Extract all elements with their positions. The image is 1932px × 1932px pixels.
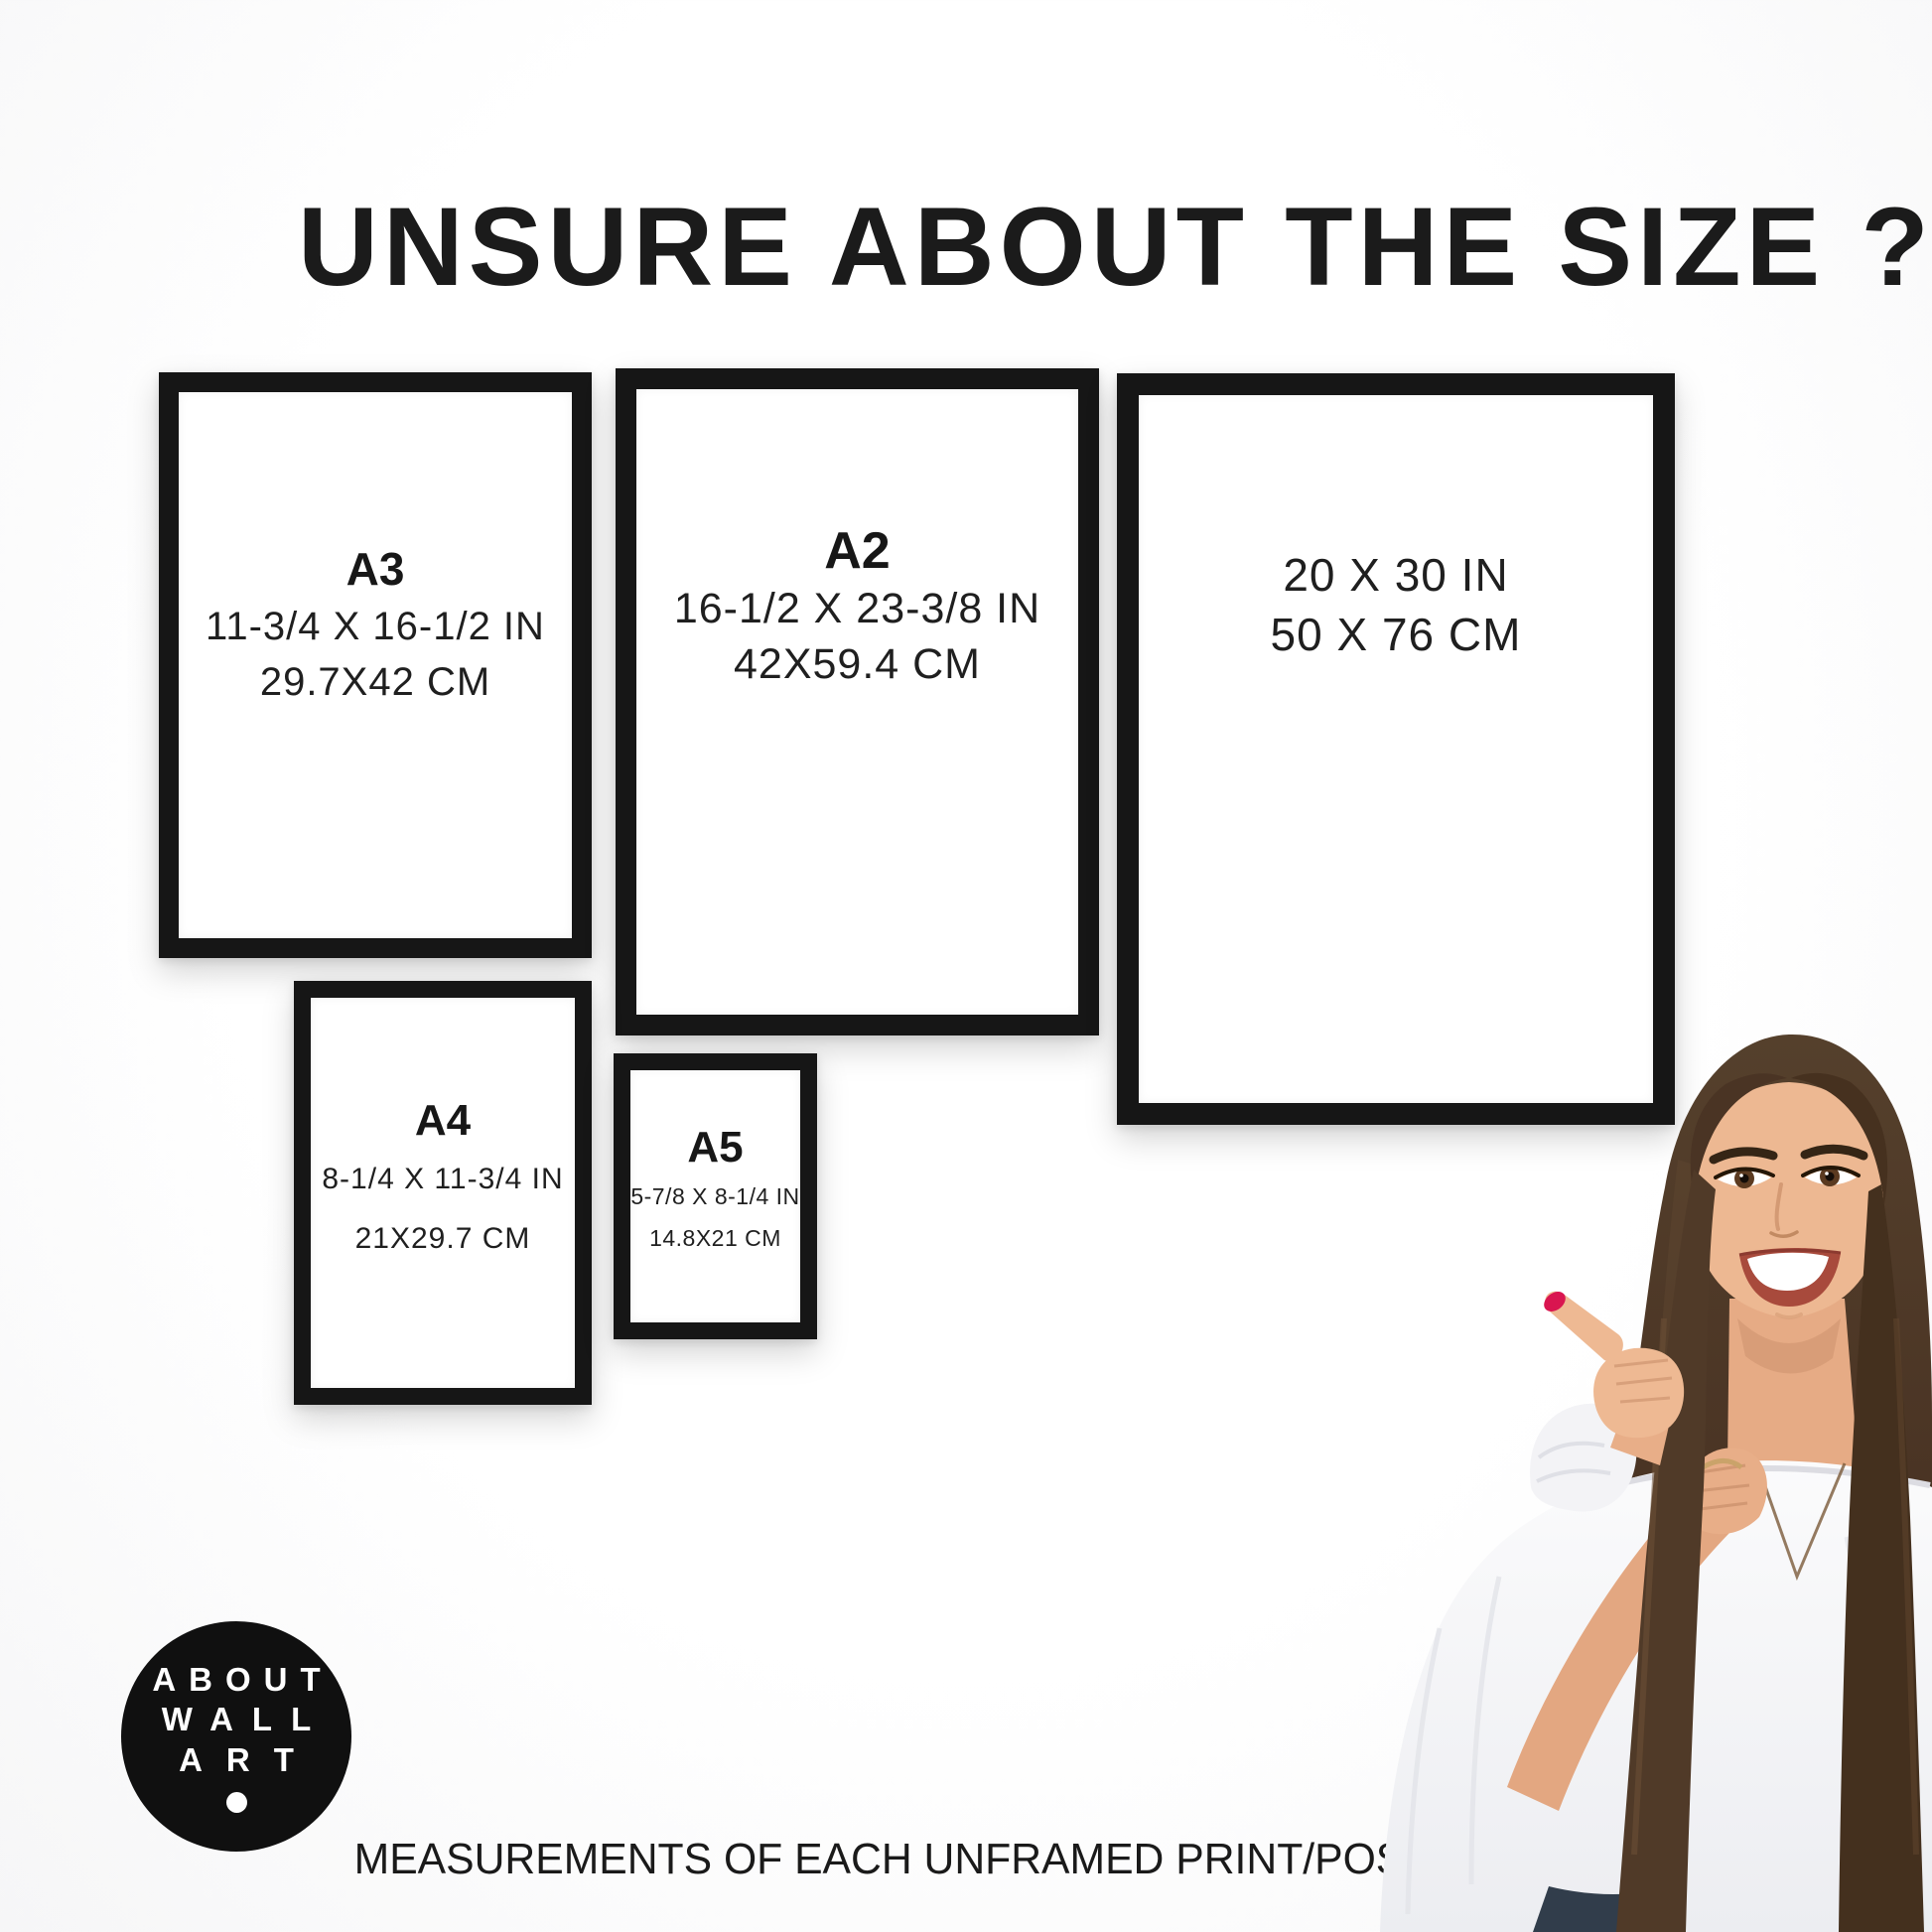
- frame-label: A4: [415, 1095, 471, 1148]
- frame-20x30: 20 X 30 IN 50 X 76 CM: [1117, 373, 1675, 1125]
- frame-size-inches: 11-3/4 X 16-1/2 IN: [206, 599, 545, 655]
- frame-size-cm: 29.7X42 CM: [260, 654, 490, 711]
- frame-a5-mat: A5 5-7/8 X 8-1/4 IN 14.8X21 CM: [630, 1070, 800, 1322]
- frame-a2-mat: A2 16-1/2 X 23-3/8 IN 42X59.4 CM: [636, 389, 1078, 1015]
- frame-size-cm: 21X29.7 CM: [355, 1219, 531, 1260]
- model-photo: [1380, 1021, 1932, 1932]
- frame-size-inches: 16-1/2 X 23-3/8 IN: [674, 582, 1040, 637]
- frame-20x30-mat: 20 X 30 IN 50 X 76 CM: [1139, 395, 1653, 1103]
- frame-size-cm: 14.8X21 CM: [649, 1224, 781, 1254]
- page-title: UNSURE ABOUT THE SIZE ?: [298, 192, 1720, 303]
- frame-size-cm: 50 X 76 CM: [1271, 606, 1522, 665]
- frame-a2: A2 16-1/2 X 23-3/8 IN 42X59.4 CM: [616, 368, 1099, 1035]
- frame-a3: A3 11-3/4 X 16-1/2 IN 29.7X42 CM: [159, 372, 592, 958]
- logo-text-line: WALL: [162, 1700, 330, 1739]
- brand-logo: ABOUT WALL ART: [121, 1621, 351, 1852]
- frame-label: A3: [346, 541, 405, 599]
- logo-text-line: ART: [179, 1740, 318, 1780]
- logo-dot: [226, 1792, 247, 1813]
- frame-size-cm: 42X59.4 CM: [734, 637, 981, 693]
- frame-label: A2: [824, 520, 890, 582]
- frame-size-inches: 8-1/4 X 11-3/4 IN: [322, 1160, 563, 1200]
- frame-size-inches: 20 X 30 IN: [1283, 546, 1508, 606]
- frame-a4-mat: A4 8-1/4 X 11-3/4 IN 21X29.7 CM: [311, 998, 575, 1388]
- frame-a3-mat: A3 11-3/4 X 16-1/2 IN 29.7X42 CM: [179, 392, 572, 938]
- frame-size-inches: 5-7/8 X 8-1/4 IN: [630, 1182, 799, 1212]
- logo-text-line: ABOUT: [152, 1660, 333, 1700]
- woman-face: [1691, 1073, 1887, 1318]
- frame-label: A5: [687, 1122, 743, 1174]
- frame-a4: A4 8-1/4 X 11-3/4 IN 21X29.7 CM: [294, 981, 592, 1405]
- frame-a5: A5 5-7/8 X 8-1/4 IN 14.8X21 CM: [614, 1053, 817, 1339]
- footer-caption: MEASUREMENTS OF EACH UNFRAMED PRINT/POST…: [354, 1835, 1424, 1884]
